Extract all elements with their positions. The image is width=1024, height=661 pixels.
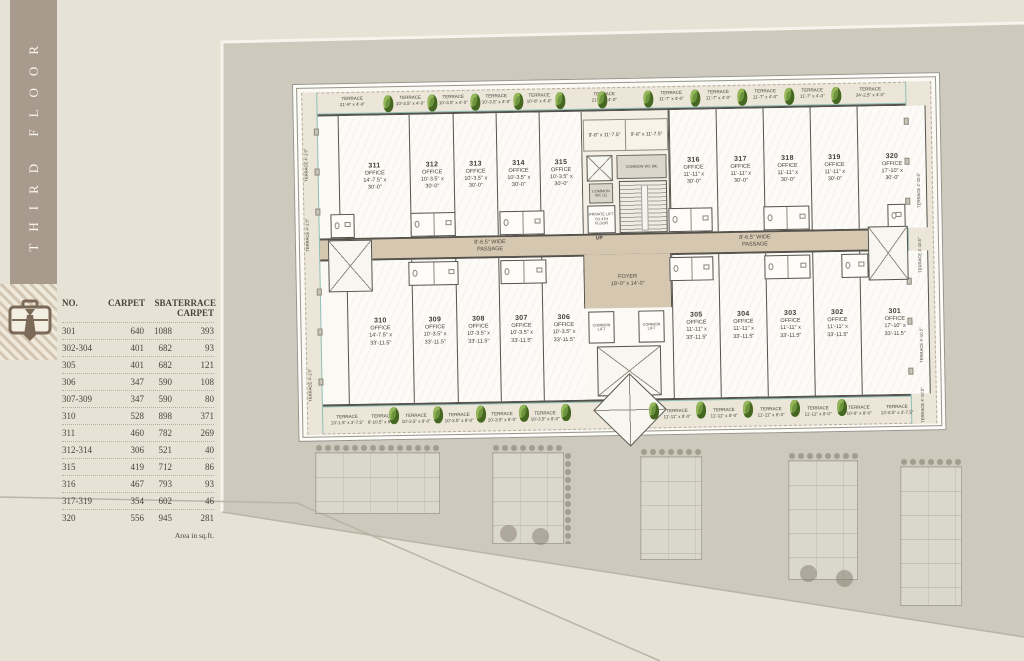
terrace-label: TERRACE10'-3.5" x 8'-0"	[531, 410, 560, 422]
sink-fixture	[703, 264, 709, 269]
cell-carpet: 556	[108, 510, 144, 526]
office-dims: 17'-10" x	[884, 323, 905, 330]
foyer-dims: 19'-0" x 14'-0"	[611, 281, 645, 289]
office-type: OFFICE	[468, 323, 488, 330]
office-number: 301	[888, 308, 901, 315]
office-type: OFFICE	[730, 163, 750, 170]
cell-carpet: 347	[108, 374, 144, 390]
terrace-label: TERRACE11'-11" x 8'-0"	[757, 406, 784, 418]
terrace-dims: 10'-3.5" x 8'-0"	[488, 417, 517, 423]
area-table: NO. CARPET SBA TERRACE CARPET 3016401088…	[62, 298, 214, 540]
sink-fixture	[702, 215, 708, 220]
office-row-top: 9'-8" x 11'-7.5" 9'-8" x 11'-7.5" COMMON…	[318, 104, 908, 239]
office-cell: 317OFFICE11'-11" x30'-0"	[716, 108, 765, 231]
column-tick	[904, 118, 909, 125]
office-type: OFFICE	[824, 161, 844, 168]
core-terrace-b: 9'-8" x 11'-7.5"	[626, 119, 668, 150]
wc-divider	[523, 261, 524, 283]
terrace-dims: 13'-1.5" x 3'-7.5"	[331, 419, 364, 425]
terrace-label: TERRACE11'-11" x 8'-0"	[710, 407, 737, 419]
office-dims: 11'-11" x	[777, 170, 798, 177]
cell-no: 320	[62, 510, 108, 526]
floor-plan: 8'-6.5" WIDE PASSAGE 8'-6.5" WIDE PASSAG…	[292, 72, 946, 442]
cell-terrace: 281	[172, 510, 214, 526]
cell-sba: 712	[144, 459, 172, 475]
plant-icon	[649, 402, 659, 419]
office-dims: 33'-11.5"	[370, 340, 391, 347]
col-carpet: CARPET	[108, 298, 144, 318]
office-number: 303	[784, 310, 797, 317]
office-number: 313	[469, 160, 482, 167]
cell-carpet: 467	[108, 476, 144, 492]
office-type: OFFICE	[780, 318, 800, 325]
washroom	[500, 259, 546, 284]
column-tick	[315, 209, 320, 216]
office-number: 305	[690, 312, 703, 319]
table-row: 317-31935460246	[62, 492, 214, 509]
terrace-dims: 11'-11" x 8'-0"	[805, 411, 832, 417]
cell-no: 305	[62, 357, 108, 373]
office-type: OFFICE	[370, 325, 390, 332]
cell-no: 312-314	[62, 442, 108, 458]
washroom	[669, 256, 713, 281]
office-number: 311	[368, 162, 380, 169]
office-type: OFFICE	[686, 319, 706, 326]
column-tick	[317, 328, 322, 335]
office-type: OFFICE	[364, 170, 384, 177]
terrace-label: TERRACE10'-3.5" x 8'-0"	[445, 412, 474, 424]
tree-icon	[500, 525, 517, 542]
washroom	[764, 255, 810, 280]
office-type: OFFICE	[422, 169, 442, 176]
tree-icon	[532, 528, 549, 545]
office-cell: 315OFFICE10'-3.5" x30'-0"	[539, 112, 583, 235]
terrace-label: TERRACE10'-3.5" x 4'-0"	[482, 93, 511, 105]
terrace-label-side: TERRACE 4'-1.5"	[304, 149, 309, 182]
office-cell: 319OFFICE11'-11" x30'-0"	[810, 107, 859, 230]
office-dims: 11'-11" x	[686, 327, 707, 334]
office-dims: 10'-3.5" x	[464, 175, 487, 182]
cell-terrace: 108	[172, 374, 214, 390]
terrace-dims: 13'-8.5" x 3'-7.5"	[881, 409, 914, 415]
sink-fixture	[800, 262, 806, 267]
common-lift: COMMON LIFT	[638, 310, 665, 342]
cell-carpet: 306	[108, 442, 144, 458]
terrace-label: TERRACE11'-11" x 8'-0"	[804, 405, 831, 417]
table-row: 31646779393	[62, 475, 214, 492]
terrace-dims: 11'-7" x 4'-0"	[659, 95, 684, 101]
office-dims: 11'-11" x	[730, 170, 751, 177]
office-type: OFFICE	[683, 164, 703, 171]
plant-icon	[389, 407, 399, 424]
wc-divider	[433, 213, 434, 235]
terrace-label: TERRACE11'-7" x 4'-0"	[800, 87, 825, 99]
table-header: NO. CARPET SBA TERRACE CARPET	[62, 298, 214, 322]
office-dims: 33'-11.5"	[733, 333, 754, 340]
column-tick	[905, 198, 910, 205]
shaft	[586, 155, 612, 181]
cell-no: 302-304	[62, 340, 108, 356]
office-type: OFFICE	[885, 316, 905, 323]
office-dims: 30'-0"	[512, 182, 526, 189]
terrace-dims: 21'-9" x 4'-0"	[340, 101, 365, 107]
table-row: 3016401088393	[62, 322, 214, 339]
cell-sba: 945	[144, 510, 172, 526]
office-dims: 33'-11.5"	[686, 334, 707, 341]
cell-terrace: 40	[172, 442, 214, 458]
plant-icon	[743, 401, 753, 418]
column-tick	[908, 368, 913, 375]
wc-divider	[786, 207, 787, 229]
cell-sba: 682	[144, 357, 172, 373]
plant-icon	[383, 95, 393, 112]
terrace-dims: 10'-8" x 8'-0"	[846, 410, 871, 416]
terrace-label: TERRACE34'-2.5" x 4'-0"	[856, 86, 885, 98]
terrace-dims: 34'-2.5" x 4'-0"	[856, 92, 885, 98]
parking-ghost	[315, 452, 440, 514]
office-dims: 30'-0"	[425, 183, 439, 190]
column-tick	[907, 318, 912, 325]
wc-divider	[690, 209, 691, 231]
terrace-label: TERRACE10'-8" x 8'-0"	[846, 404, 871, 416]
terrace-dims: 10'-8" x 4'-0"	[527, 98, 552, 104]
sink-fixture	[448, 269, 454, 274]
wc-fixture	[672, 216, 677, 223]
office-number: 320	[886, 152, 899, 159]
office-number: 307	[515, 315, 528, 322]
office-number: 306	[557, 314, 570, 321]
office-dims: 30'-0"	[469, 183, 483, 190]
office-dims: 10'-3.5" x	[424, 332, 447, 339]
office-number: 308	[472, 316, 485, 323]
office-number: 317	[734, 155, 747, 162]
cell-carpet: 354	[108, 493, 144, 509]
office-dims: 30'-0"	[734, 178, 748, 185]
washroom	[408, 261, 458, 286]
core-terraces: 9'-8" x 11'-7.5" 9'-8" x 11'-7.5"	[583, 118, 669, 152]
wc-divider	[522, 212, 523, 234]
sink-fixture	[858, 261, 864, 266]
cell-carpet: 401	[108, 357, 144, 373]
terrace-label: TERRACE10'-3.5" x 4'-0"	[396, 95, 425, 107]
parking-ghost	[788, 460, 858, 580]
plant-icon	[643, 90, 653, 107]
wc-divider	[433, 262, 434, 284]
washroom	[887, 204, 905, 228]
office-type: OFFICE	[511, 323, 531, 330]
washroom	[330, 214, 354, 238]
washroom	[841, 253, 868, 277]
cell-terrace: 80	[172, 391, 214, 407]
office-dims: 33'-11.5"	[884, 330, 905, 337]
cell-terrace: 371	[172, 408, 214, 424]
office-dims: 30'-0"	[687, 179, 701, 186]
terrace-label-side: TERRACE 4'-10.5"	[921, 387, 926, 422]
wc-fixture	[335, 222, 340, 229]
terrace-label-side: TERRACE 4'-10.5"	[917, 172, 922, 207]
foyer: FOYER 19'-0" x 14'-0"	[583, 253, 672, 309]
wc-fixture	[504, 268, 509, 275]
table-row: 305401682121	[62, 356, 214, 373]
office-dims: 11'-11" x	[827, 324, 848, 331]
terrace-dims: 10'-3.5" x 8'-0"	[402, 418, 431, 424]
cell-sba: 898	[144, 408, 172, 424]
terrace-dims: 11'-7" x 4'-0"	[706, 95, 731, 101]
tree-row	[788, 452, 858, 460]
office-number: 314	[512, 159, 525, 166]
cell-no: 307-309	[62, 391, 108, 407]
terrace-label-side: TERRACE 4'-10.5"	[918, 237, 923, 272]
passage-label: 8'-6.5" WIDE PASSAGE	[739, 234, 771, 248]
tree-row	[492, 444, 564, 452]
cell-terrace: 86	[172, 459, 214, 475]
office-type: OFFICE	[425, 324, 445, 331]
cell-terrace: 93	[172, 340, 214, 356]
parking-ghost	[900, 466, 962, 606]
sink-fixture	[799, 213, 805, 218]
table-footnote: Area in sq.ft.	[62, 526, 214, 540]
core-zone: 9'-8" x 11'-7.5" 9'-8" x 11'-7.5" COMMON…	[581, 110, 671, 234]
plant-icon	[513, 93, 523, 110]
cell-sba: 521	[144, 442, 172, 458]
office-dims: 11'-11" x	[824, 169, 845, 176]
table-row: 306347590108	[62, 373, 214, 390]
floor-plan-inner: 8'-6.5" WIDE PASSAGE 8'-6.5" WIDE PASSAG…	[296, 76, 942, 438]
tree-row	[315, 444, 440, 452]
office-type: OFFICE	[551, 166, 571, 173]
cell-sba: 682	[144, 340, 172, 356]
passage-label: 8'-6.5" WIDE PASSAGE	[474, 239, 506, 253]
office-dims: 14'-7.5" x	[363, 177, 386, 184]
cell-terrace: 46	[172, 493, 214, 509]
column-tick	[315, 169, 320, 176]
office-number: 312	[426, 161, 439, 168]
wc-fixture	[767, 214, 772, 221]
plant-icon	[519, 405, 529, 422]
terrace-label: TERRACE10'-3.5" x 4'-0"	[439, 94, 468, 106]
plant-icon	[476, 406, 486, 423]
cell-carpet: 401	[108, 340, 144, 356]
table-body: 3016401088393302-30440168293305401682121…	[62, 322, 214, 526]
parking-ghost	[640, 456, 702, 560]
terrace-label: TERRACE10'-8" x 4'-0"	[527, 92, 552, 104]
terrace-dims: 10'-3.5" x 8'-0"	[445, 417, 474, 423]
terrace-label-side: TERRACE 4'-10.5"	[920, 327, 925, 362]
terrace-label: TERRACE10'-3.5" x 8'-0"	[488, 411, 517, 423]
table-row: 31541971286	[62, 458, 214, 475]
office-dims: 30'-0"	[781, 177, 795, 184]
terrace-label: TERRACE11'-7" x 4'-0"	[753, 88, 778, 100]
terrace-dims: 11'-11" x 8'-0"	[711, 413, 738, 419]
wc-divider	[691, 258, 692, 280]
office-number: 319	[828, 153, 841, 160]
plant-icon	[737, 89, 747, 106]
table-row: 310528898371	[62, 407, 214, 424]
office-dims: 33'-11.5"	[554, 337, 575, 344]
plant-icon	[433, 406, 443, 423]
stairs	[619, 180, 668, 233]
office-type: OFFICE	[882, 160, 902, 167]
plant-icon	[470, 94, 480, 111]
office-dims: 33'-11.5"	[468, 338, 489, 345]
plant-icon	[696, 401, 706, 418]
wc-fixture	[504, 219, 509, 226]
plant-icon	[837, 399, 847, 416]
terrace-dims: 10'-3.5" x 4'-0"	[482, 99, 511, 105]
office-dims: 10'-3.5" x	[467, 331, 490, 338]
office-dims: 33'-11.5"	[511, 337, 532, 344]
office-dims: 33'-11.5"	[780, 332, 801, 339]
washroom	[763, 206, 809, 231]
office-dims: 30'-0"	[368, 185, 382, 192]
terrace-label: TERRACE10'-3.5" x 8'-0"	[402, 413, 431, 425]
office-dims: 30'-0"	[885, 175, 899, 182]
common-wc-l: COMMON WC (L)	[589, 183, 613, 203]
office-dims: 30'-0"	[554, 181, 568, 188]
cell-carpet: 640	[108, 323, 144, 339]
office-cell: 308OFFICE10'-3.5" x33'-11.5"	[455, 258, 501, 402]
plant-icon	[831, 87, 841, 104]
table-row: 312-31430652140	[62, 441, 214, 458]
plant-icon	[555, 92, 565, 109]
office-number: 310	[374, 317, 387, 324]
common-lift: COMMON LIFT	[588, 311, 615, 343]
office-type: OFFICE	[733, 319, 753, 326]
plant-icon	[790, 400, 800, 417]
cell-terrace: 269	[172, 425, 214, 441]
cell-sba: 590	[144, 374, 172, 390]
terrace-label: TERRACE11'-11" x 8'-0"	[663, 408, 690, 420]
table-row: 302-30440168293	[62, 339, 214, 356]
private-lift: PRIVATE LIFT TO 4TH FLOOR	[587, 205, 616, 234]
office-dims: 10'-3.5" x	[507, 174, 530, 181]
washroom	[499, 210, 544, 235]
washroom	[410, 212, 455, 237]
office-dims: 10'-3.5" x	[421, 176, 444, 183]
briefcase-tie-icon	[7, 293, 53, 345]
office-dims: 10'-3.5" x	[550, 174, 573, 181]
cell-carpet: 460	[108, 425, 144, 441]
wc-divider	[787, 256, 788, 278]
office-number: 316	[687, 156, 700, 163]
terrace-label: TERRACE13'-1.5" x 3'-7.5"	[331, 414, 364, 426]
office-cell: 304OFFICE11'-11" x33'-11.5"	[718, 253, 768, 397]
office-dims: 11'-11" x	[683, 171, 704, 178]
cell-no: 310	[62, 408, 108, 424]
wc-fixture	[845, 261, 850, 268]
office-dims: 10'-3.5" x	[553, 329, 576, 336]
table-row: 307-30934759080	[62, 390, 214, 407]
office-dims: 10'-3.5" x	[510, 330, 533, 337]
cell-sba: 590	[144, 391, 172, 407]
col-no: NO.	[62, 298, 108, 318]
office-number: 309	[428, 316, 441, 323]
wc-fixture	[673, 265, 678, 272]
terrace-dims: 11'-11" x 8'-0"	[758, 412, 785, 418]
office-cell: 306OFFICE10'-3.5" x33'-11.5"	[541, 257, 586, 401]
office-number: 304	[737, 311, 750, 318]
office-type: OFFICE	[827, 317, 847, 324]
cell-carpet: 347	[108, 391, 144, 407]
office-dims: 30'-0"	[828, 176, 842, 183]
tree-row	[640, 448, 702, 456]
cell-carpet: 528	[108, 408, 144, 424]
core-terrace-a: 9'-8" x 11'-7.5"	[584, 120, 627, 151]
office-type: OFFICE	[554, 322, 574, 329]
tree-row	[564, 452, 572, 544]
column-tick	[904, 158, 909, 165]
office-type: OFFICE	[508, 167, 528, 174]
floor-band: THIRD FLOOR	[10, 0, 57, 286]
terrace-dims: 10'-3.5" x 8'-0"	[531, 416, 560, 422]
office-dims: 11'-11" x	[780, 325, 801, 332]
terrace-label-side: TERRACE 4'-1.5"	[305, 219, 310, 252]
plant-icon	[690, 90, 700, 107]
sink-fixture	[895, 211, 901, 216]
wc-fixture	[415, 220, 420, 227]
office-number: 315	[555, 159, 568, 166]
terrace-dims: 11'-7" x 4'-0"	[800, 93, 825, 99]
office-dims: 33'-11.5"	[425, 339, 446, 346]
column-tick	[317, 288, 322, 295]
column-tick	[318, 378, 323, 385]
tree-icon	[836, 570, 853, 587]
cell-carpet: 419	[108, 459, 144, 475]
plant-icon	[597, 91, 607, 108]
floor-label: THIRD FLOOR	[26, 34, 42, 252]
tree-row	[900, 458, 962, 466]
office-dims: 33'-11.5"	[827, 332, 848, 339]
plant-icon	[784, 88, 794, 105]
cell-no: 311	[62, 425, 108, 441]
tree-icon	[800, 565, 817, 582]
column-tick	[314, 129, 319, 136]
office-cell: 313OFFICE10'-3.5" x30'-0"	[453, 113, 498, 236]
sink-fixture	[534, 218, 540, 223]
terrace-dims: 10'-3.5" x 4'-0"	[396, 100, 425, 106]
washroom	[668, 207, 712, 232]
cell-no: 315	[62, 459, 108, 475]
col-terrace: TERRACE CARPET	[172, 298, 214, 318]
terrace-label: TERRACE11'-7" x 4'-0"	[659, 90, 684, 102]
cell-no: 301	[62, 323, 108, 339]
sink-fixture	[345, 222, 351, 227]
terrace-dims: 11'-11" x 8'-0"	[664, 413, 691, 419]
up-label: UP	[596, 235, 603, 241]
terrace-label: TERRACE13'-8.5" x 3'-7.5"	[881, 404, 914, 416]
cell-sba: 793	[144, 476, 172, 492]
plant-icon	[427, 94, 437, 111]
cell-terrace: 121	[172, 357, 214, 373]
wc-fixture	[412, 269, 417, 276]
office-dims: 17'-10" x	[881, 168, 902, 175]
cell-no: 316	[62, 476, 108, 492]
cell-sba: 602	[144, 493, 172, 509]
terrace-label: TERRACE21'-9" x 4'-0"	[340, 96, 365, 108]
cell-terrace: 93	[172, 476, 214, 492]
office-type: OFFICE	[465, 168, 485, 175]
cell-sba: 782	[144, 425, 172, 441]
office-type: OFFICE	[777, 162, 797, 169]
office-dims: 14'-7.5" x	[369, 333, 392, 340]
sink-fixture	[446, 220, 452, 225]
wc-fixture	[768, 263, 773, 270]
cell-no: 317-319	[62, 493, 108, 509]
terrace-label: TERRACE11'-7" x 4'-0"	[706, 89, 731, 101]
table-row: 311460782269	[62, 424, 214, 441]
office-dims: 11'-11" x	[733, 326, 754, 333]
office-number: 302	[831, 309, 844, 316]
